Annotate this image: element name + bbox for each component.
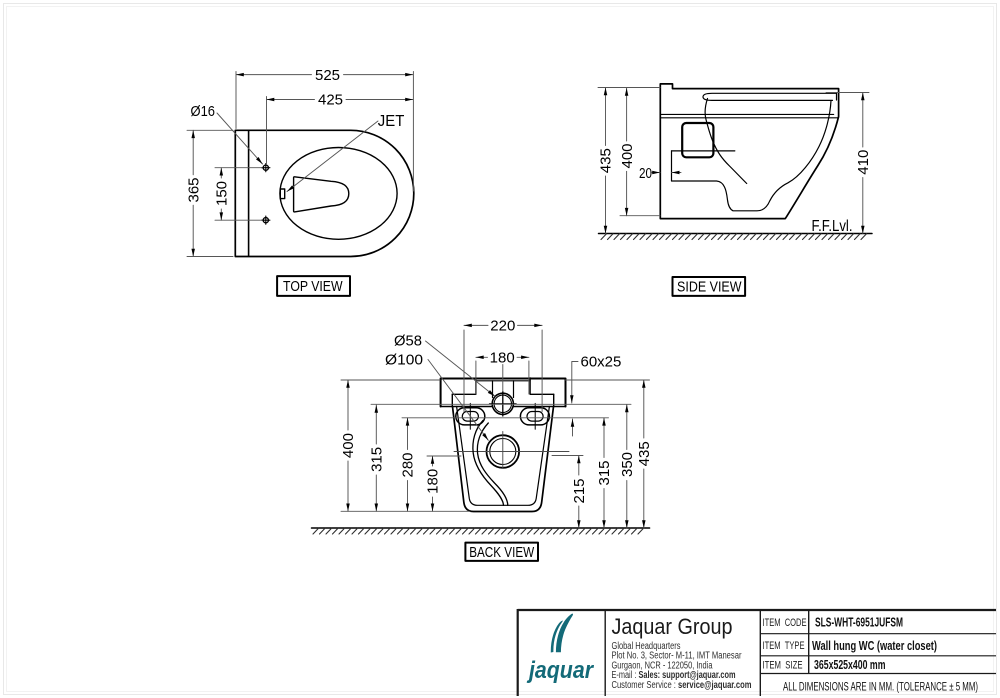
svg-text:220: 220 [490, 318, 515, 335]
svg-text:400: 400 [340, 433, 357, 458]
svg-text:280: 280 [400, 452, 417, 477]
svg-text:20: 20 [639, 166, 652, 182]
svg-text:400: 400 [619, 143, 636, 168]
svg-text:jaquar: jaquar [526, 657, 594, 684]
svg-text:JET: JET [378, 113, 405, 130]
svg-text:Ø58: Ø58 [394, 333, 422, 350]
svg-text:435: 435 [598, 148, 615, 173]
svg-text:ITEM CODE: ITEM CODE [763, 617, 807, 629]
svg-text:Jaquar Group: Jaquar Group [612, 614, 733, 639]
svg-text:150: 150 [214, 181, 231, 206]
svg-text:ITEM TYPE: ITEM TYPE [763, 640, 805, 652]
svg-text:350: 350 [619, 452, 636, 477]
svg-text:Customer Service : service@jaq: Customer Service : service@jaquar.com [612, 680, 752, 691]
svg-text:180: 180 [425, 469, 442, 494]
svg-text:ITEM SIZE: ITEM SIZE [763, 659, 803, 671]
svg-text:SIDE VIEW: SIDE VIEW [677, 279, 742, 295]
svg-text:215: 215 [571, 478, 588, 503]
svg-text:525: 525 [315, 67, 340, 84]
svg-text:F.F.Lvl.: F.F.Lvl. [812, 218, 853, 235]
svg-text:BACK VIEW: BACK VIEW [469, 545, 534, 561]
svg-text:TOP VIEW: TOP VIEW [283, 279, 343, 295]
svg-text:180: 180 [490, 350, 515, 367]
svg-text:315: 315 [596, 460, 613, 485]
svg-text:ALL DIMENSIONS ARE IN MM. (TOL: ALL DIMENSIONS ARE IN MM. (TOLERANCE ± 5… [783, 682, 978, 694]
svg-text:Ø100: Ø100 [385, 352, 423, 369]
svg-text:365x525x400 mm: 365x525x400 mm [814, 658, 886, 672]
svg-text:435: 435 [636, 441, 653, 466]
svg-text:365: 365 [185, 177, 202, 202]
svg-text:425: 425 [318, 92, 343, 109]
svg-text:315: 315 [369, 447, 386, 472]
svg-text:60x25: 60x25 [581, 354, 622, 371]
svg-text:410: 410 [855, 150, 872, 175]
svg-text:Ø16: Ø16 [191, 103, 216, 120]
svg-text:Wall hung WC (water closet): Wall hung WC (water closet) [812, 638, 937, 653]
svg-text:SLS-WHT-6951JUFSM: SLS-WHT-6951JUFSM [815, 616, 903, 630]
